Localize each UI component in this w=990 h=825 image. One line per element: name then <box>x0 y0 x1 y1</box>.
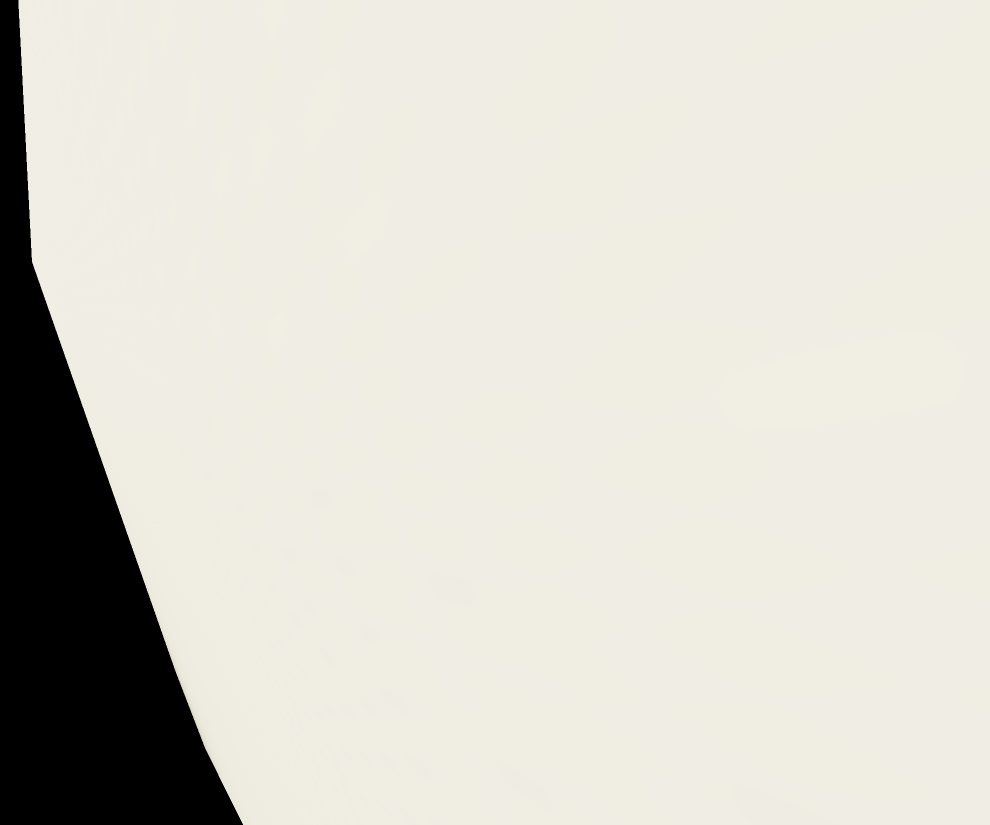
corner-crease <box>204 660 235 739</box>
product-photo-stage: House of miniature Bath room maileg <box>0 0 990 825</box>
tall-door <box>778 73 821 183</box>
